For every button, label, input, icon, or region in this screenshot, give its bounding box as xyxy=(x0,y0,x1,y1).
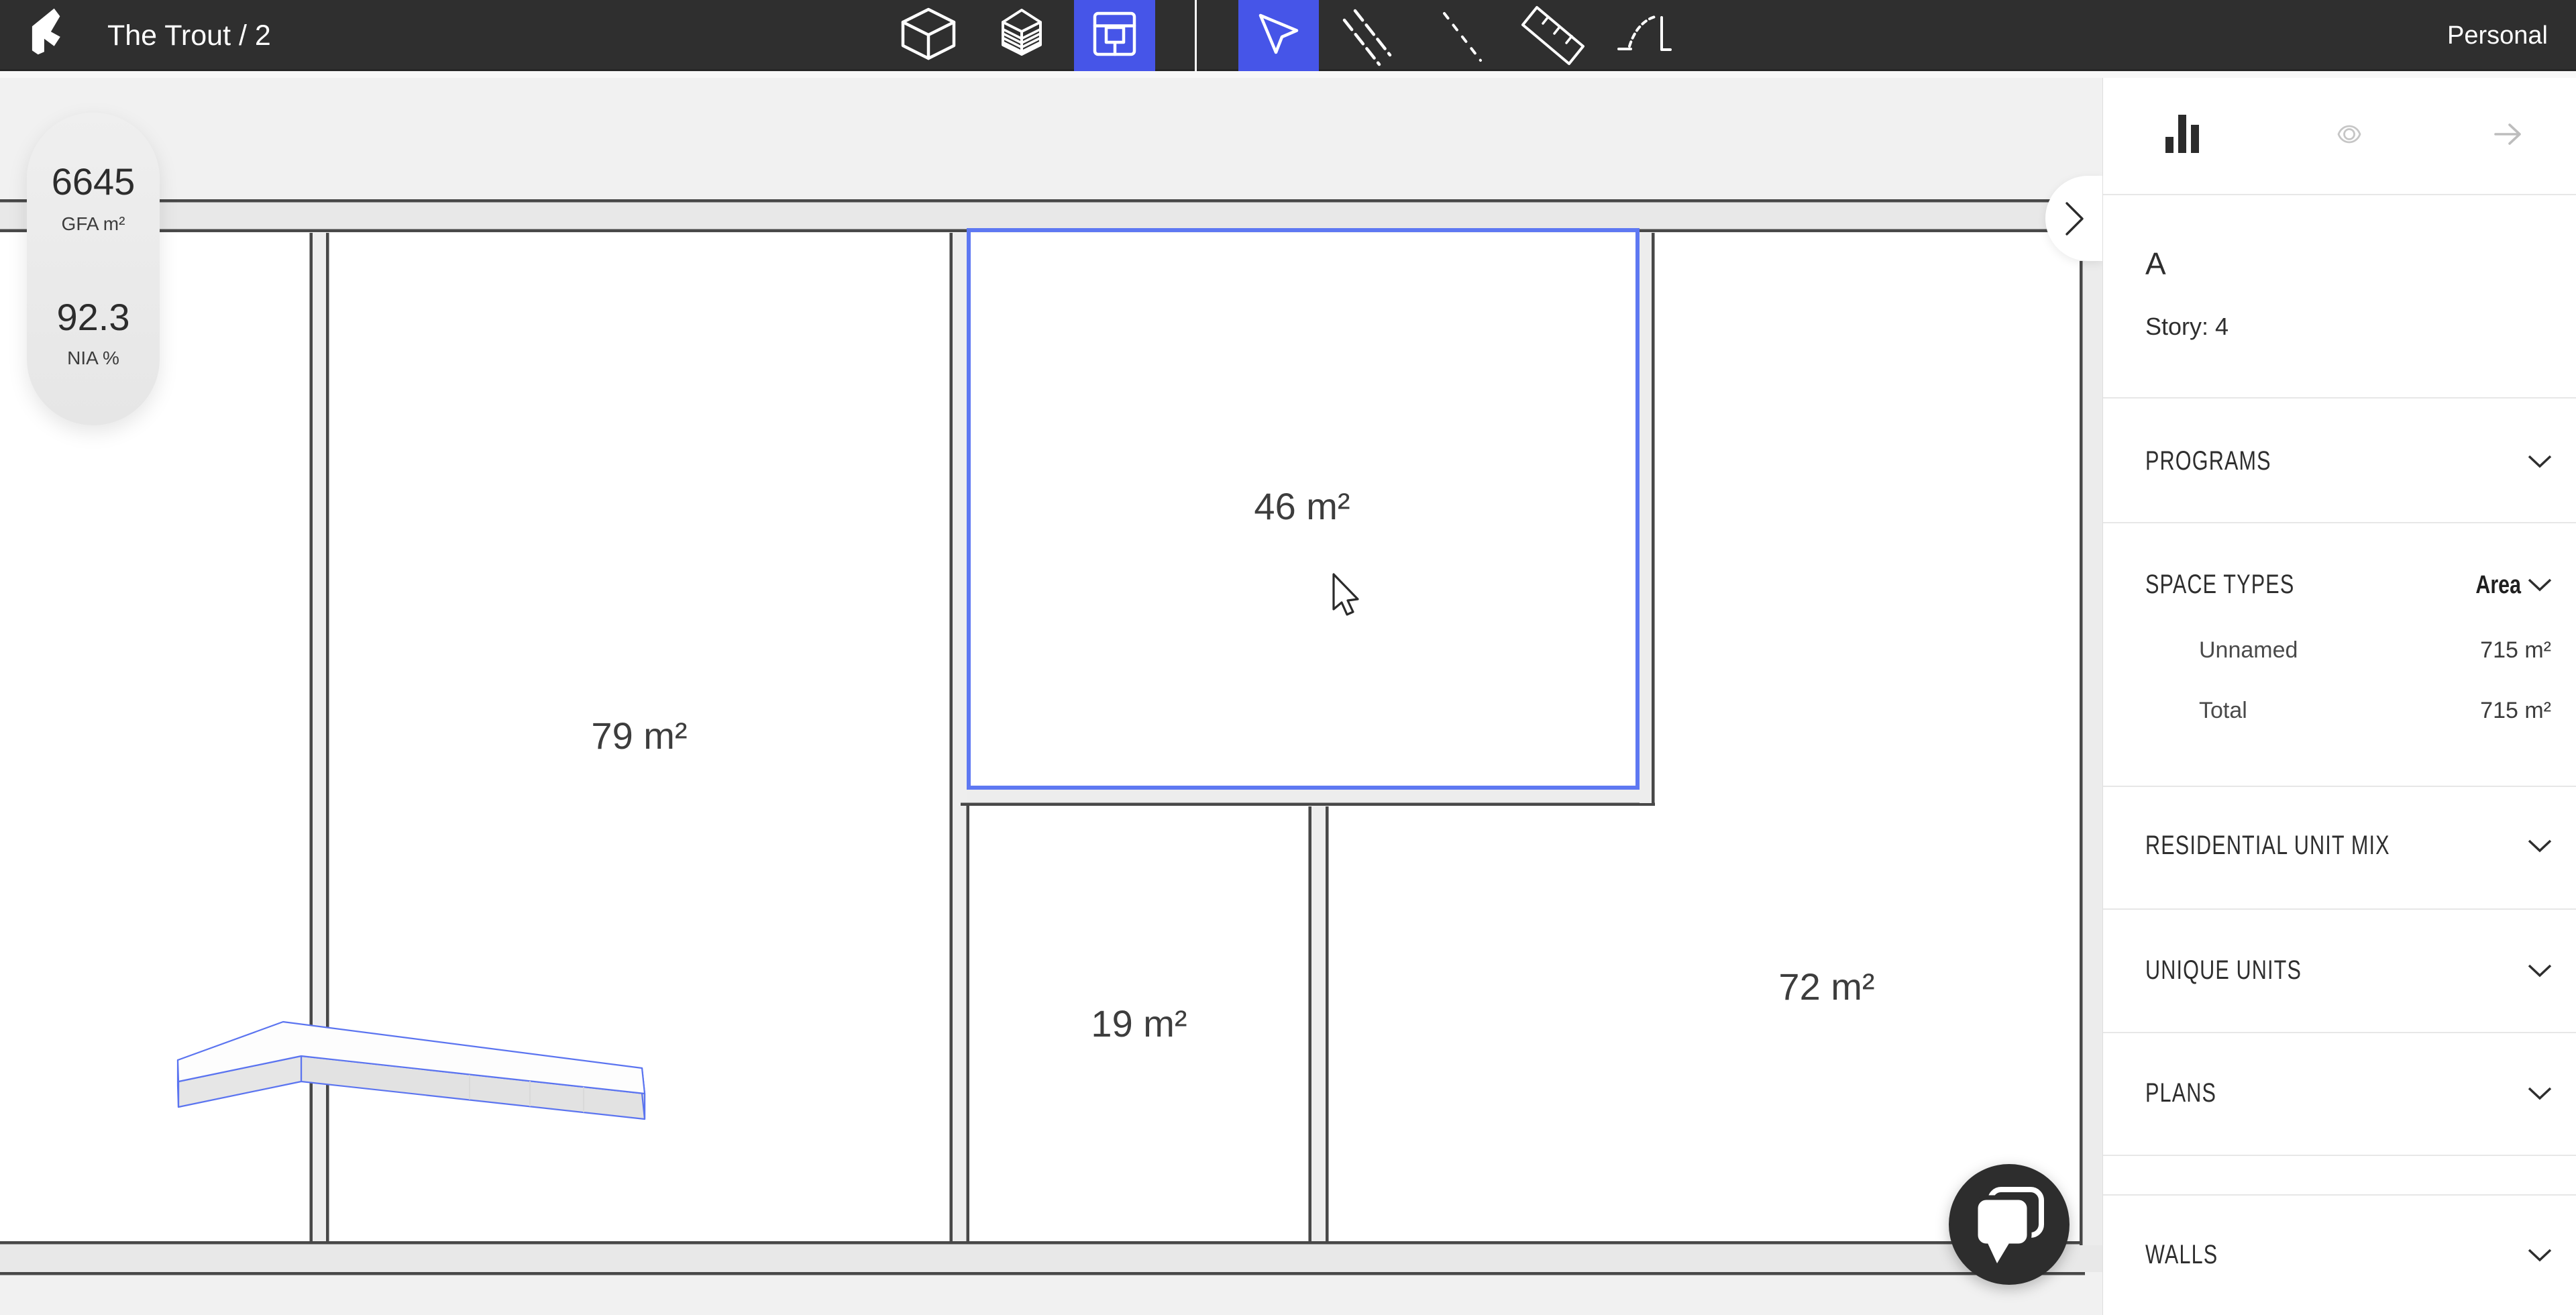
svg-text:79 m²: 79 m² xyxy=(591,715,687,757)
svg-text:72 m²: 72 m² xyxy=(1778,965,1874,1008)
svg-text:19 m²: 19 m² xyxy=(1091,1002,1187,1045)
svg-text:46 m²: 46 m² xyxy=(1254,485,1350,527)
